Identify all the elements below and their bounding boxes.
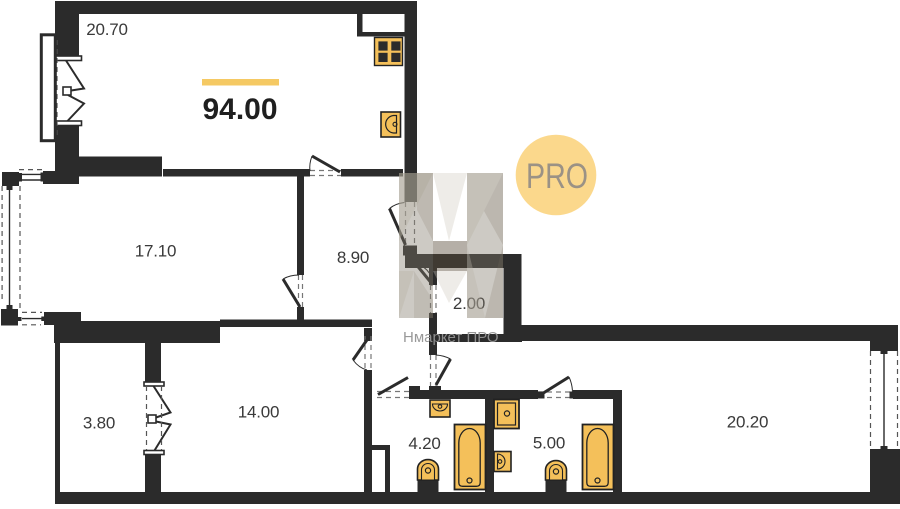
svg-text:4.20: 4.20 <box>408 434 440 453</box>
svg-text:20.20: 20.20 <box>727 412 769 431</box>
svg-text:20.70: 20.70 <box>86 20 128 39</box>
svg-text:14.00: 14.00 <box>238 403 280 422</box>
svg-text:PRO: PRO <box>526 157 588 196</box>
svg-text:8.90: 8.90 <box>337 248 369 267</box>
svg-text:Нмаркет ПРО: Нмаркет ПРО <box>403 329 499 346</box>
svg-text:17.10: 17.10 <box>135 242 177 261</box>
svg-text:94.00: 94.00 <box>202 93 277 126</box>
svg-text:3.80: 3.80 <box>83 414 115 433</box>
svg-text:5.00: 5.00 <box>533 434 565 453</box>
